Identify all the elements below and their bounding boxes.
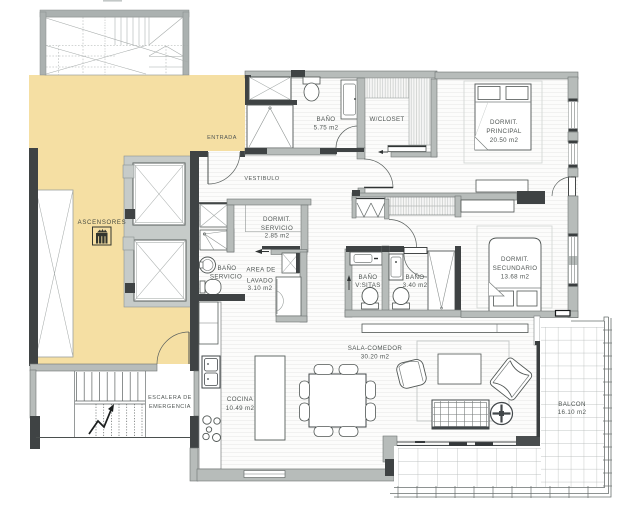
svg-text:DORMIT.: DORMIT. xyxy=(263,216,291,223)
svg-text:DORMIT.: DORMIT. xyxy=(490,119,518,126)
svg-text:BALCON: BALCON xyxy=(558,401,586,408)
svg-text:BAÑO: BAÑO xyxy=(359,274,378,281)
svg-text:DORMIT.: DORMIT. xyxy=(501,256,529,263)
svg-text:SALA-COMEDOR: SALA-COMEDOR xyxy=(348,345,403,352)
svg-text:VESTIBULO: VESTIBULO xyxy=(244,176,280,182)
svg-text:3.10 m2: 3.10 m2 xyxy=(248,285,273,292)
svg-text:3.40 m2: 3.40 m2 xyxy=(403,282,428,289)
svg-text:30.20 m2: 30.20 m2 xyxy=(361,354,390,361)
svg-text:LAVADO: LAVADO xyxy=(247,278,273,285)
svg-text:20.50 m2: 20.50 m2 xyxy=(490,137,519,144)
svg-text:ENTRADA: ENTRADA xyxy=(207,135,237,141)
svg-text:PRINCIPAL: PRINCIPAL xyxy=(486,128,522,135)
svg-text:10.49 m2: 10.49 m2 xyxy=(226,405,255,412)
svg-text:COCINA: COCINA xyxy=(227,396,254,403)
svg-text:13.68 m2: 13.68 m2 xyxy=(501,274,530,281)
svg-text:EMERGENCIA: EMERGENCIA xyxy=(149,404,191,410)
svg-text:W/CLOSET: W/CLOSET xyxy=(369,116,404,123)
svg-text:5.75 m2: 5.75 m2 xyxy=(314,125,339,132)
svg-text:ESCALERA DE: ESCALERA DE xyxy=(148,395,192,401)
svg-text:SECUNDARIO: SECUNDARIO xyxy=(493,265,538,272)
svg-text:AREA DE: AREA DE xyxy=(246,267,275,274)
svg-text:SERVICIO: SERVICIO xyxy=(261,225,293,232)
svg-text:ASCENSORES: ASCENSORES xyxy=(78,220,127,226)
svg-text:BAÑO: BAÑO xyxy=(317,116,336,123)
svg-text:2.85 m2: 2.85 m2 xyxy=(265,233,290,240)
svg-text:16.10 m2: 16.10 m2 xyxy=(558,409,587,416)
svg-text:BAÑO: BAÑO xyxy=(218,265,237,272)
svg-text:BAÑO: BAÑO xyxy=(406,274,425,281)
